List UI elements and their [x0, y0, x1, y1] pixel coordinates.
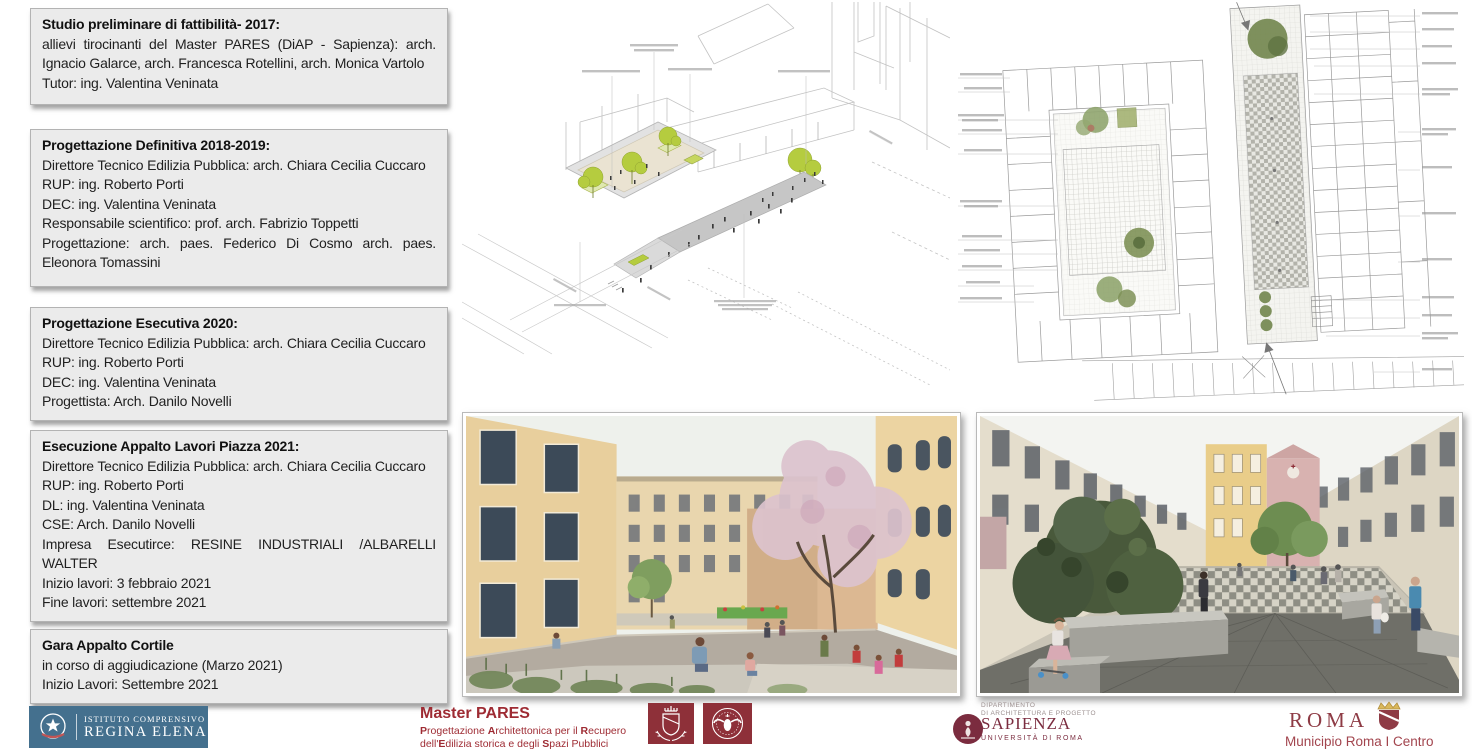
school-logo: ISTITUTO COMPRENSIVO REGINA ELENA: [29, 706, 208, 748]
box-line: DEC: ing. Valentina Veninata: [42, 373, 436, 393]
box-line: Progettazione: arch. paes. Federico Di C…: [42, 234, 436, 273]
roma-shield-icon: [1374, 700, 1404, 732]
render-street-photo: [976, 412, 1463, 697]
school-name-line1: ISTITUTO COMPRENSIVO: [84, 714, 207, 724]
university-seal-icon: [703, 703, 752, 744]
render-courtyard-photo: [462, 412, 961, 697]
box-body: allievi tirocinanti del Master PARES (Di…: [42, 35, 436, 94]
master-pares-subtitle-line2: dell'Edilizia storica e degli Spazi Pubb…: [420, 738, 626, 751]
box-title: Gara Appalto Cortile: [42, 636, 436, 656]
master-pares-logo: Master PARES Progettazione Architettonic…: [420, 705, 626, 750]
municipio-logo: ROMA Municipio Roma I Centro: [1283, 700, 1458, 749]
timeline-box-progettazione-esecutiva: Progettazione Esecutiva 2020: Direttore …: [30, 307, 448, 421]
timeline-box-gara-appalto: Gara Appalto Cortile in corso di aggiudi…: [30, 629, 448, 704]
site-plan-drawing: [954, 2, 1464, 404]
box-line: RUP: ing. Roberto Porti: [42, 175, 436, 195]
box-line: Fine lavori: settembre 2021: [42, 593, 436, 613]
axonometric-drawing: [462, 2, 950, 406]
box-line: RUP: ing. Roberto Porti: [42, 476, 436, 496]
timeline-box-esecuzione-appalto: Esecuzione Appalto Lavori Piazza 2021: D…: [30, 430, 448, 622]
box-title: Progettazione Definitiva 2018-2019:: [42, 136, 436, 156]
comune-crest-icon: [648, 703, 694, 744]
school-name-line2: REGINA ELENA: [84, 724, 207, 741]
box-line: CSE: Arch. Danilo Novelli: [42, 515, 436, 535]
box-line: allievi tirocinanti del Master PARES (Di…: [42, 35, 436, 74]
box-body: in corso di aggiudicazione (Marzo 2021)I…: [42, 656, 436, 695]
master-pares-subtitle-line1: Progettazione Architettonica per il Recu…: [420, 725, 626, 738]
box-line: RUP: ing. Roberto Porti: [42, 353, 436, 373]
box-line: Progettista: Arch. Danilo Novelli: [42, 392, 436, 412]
plan-leader-labels: [958, 12, 1458, 372]
box-line: Inizio Lavori: Settembre 2021: [42, 675, 436, 695]
sapienza-subname: UNIVERSITÀ DI ROMA: [981, 735, 1084, 742]
department-line1: DIPARTIMENTO: [981, 702, 1096, 710]
box-body: Direttore Tecnico Edilizia Pubblica: arc…: [42, 457, 436, 613]
box-title: Studio preliminare di fattibilità- 2017:: [42, 15, 436, 35]
box-line: Direttore Tecnico Edilizia Pubblica: arc…: [42, 457, 436, 477]
box-line: Tutor: ing. Valentina Veninata: [42, 74, 436, 94]
box-title: Esecuzione Appalto Lavori Piazza 2021:: [42, 437, 436, 457]
box-line: in corso di aggiudicazione (Marzo 2021): [42, 656, 436, 676]
box-line: DL: ing. Valentina Veninata: [42, 496, 436, 516]
box-line: DEC: ing. Valentina Veninata: [42, 195, 436, 215]
box-line: Impresa Esecutirce: RESINE INDUSTRIALI /…: [42, 535, 436, 574]
presentation-slide: Studio preliminare di fattibilità- 2017:…: [0, 0, 1472, 753]
roma-wordmark: ROMA: [1289, 708, 1368, 733]
master-pares-title: Master PARES: [420, 705, 626, 723]
timeline-box-progettazione-definitiva: Progettazione Definitiva 2018-2019: Dire…: [30, 129, 448, 287]
box-body: Direttore Tecnico Edilizia Pubblica: arc…: [42, 334, 436, 412]
box-line: Responsabile scientifico: prof. arch. Fa…: [42, 214, 436, 234]
box-line: Direttore Tecnico Edilizia Pubblica: arc…: [42, 156, 436, 176]
municipio-name: Municipio Roma I Centro: [1285, 734, 1458, 749]
timeline-box-studio-preliminare: Studio preliminare di fattibilità- 2017:…: [30, 8, 448, 105]
box-line: Direttore Tecnico Edilizia Pubblica: arc…: [42, 334, 436, 354]
box-line: Inizio lavori: 3 febbraio 2021: [42, 574, 436, 594]
logo-divider: [76, 714, 77, 740]
sapienza-logo: SAPIENZA UNIVERSITÀ DI ROMA: [981, 714, 1084, 742]
italy-emblem-icon: [36, 710, 70, 744]
box-title: Progettazione Esecutiva 2020:: [42, 314, 436, 334]
box-body: Direttore Tecnico Edilizia Pubblica: arc…: [42, 156, 436, 273]
sapienza-name: SAPIENZA: [981, 714, 1084, 734]
